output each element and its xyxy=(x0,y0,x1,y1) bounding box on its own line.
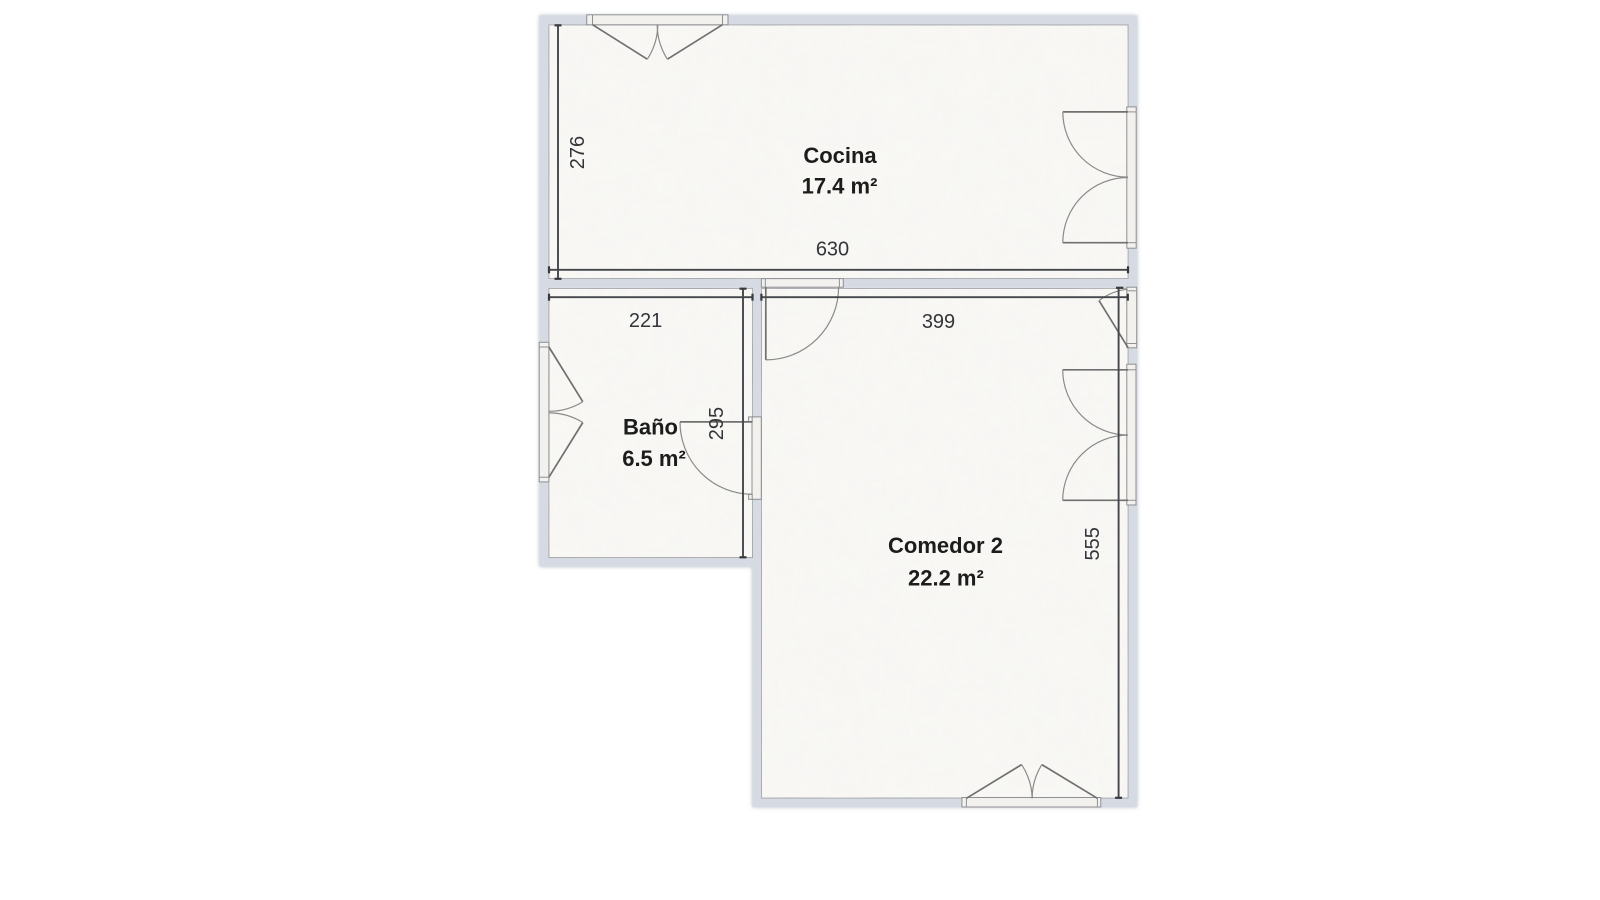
svg-text:17.4 m²: 17.4 m² xyxy=(802,174,878,199)
svg-text:Comedor 2: Comedor 2 xyxy=(888,533,1003,558)
svg-text:295: 295 xyxy=(706,407,728,440)
svg-text:22.2 m²: 22.2 m² xyxy=(908,566,984,591)
svg-text:555: 555 xyxy=(1082,527,1104,560)
svg-text:221: 221 xyxy=(629,310,662,332)
svg-text:276: 276 xyxy=(567,136,589,169)
svg-text:Baño: Baño xyxy=(623,415,678,440)
svg-text:399: 399 xyxy=(922,311,955,333)
svg-text:630: 630 xyxy=(816,238,849,260)
svg-text:Cocina: Cocina xyxy=(803,143,877,168)
svg-text:6.5 m²: 6.5 m² xyxy=(622,446,686,471)
